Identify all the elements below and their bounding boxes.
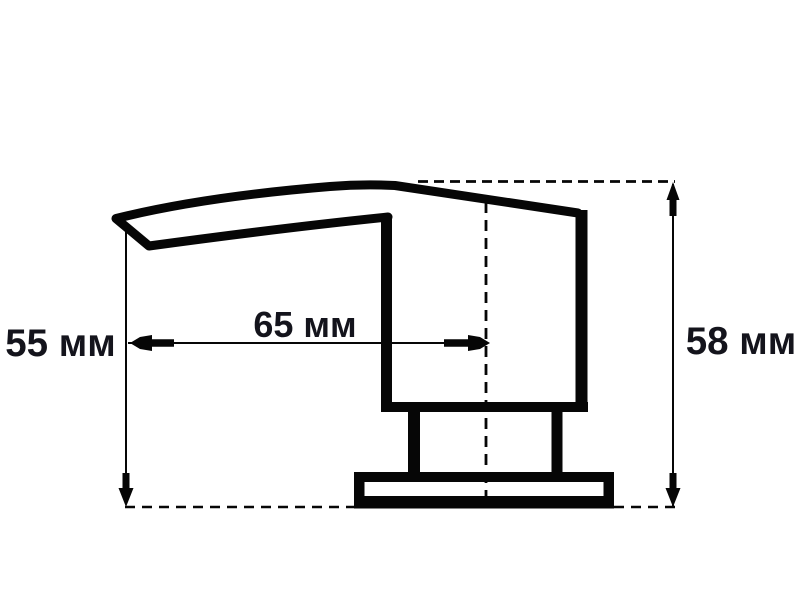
svg-text:58 мм: 58 мм: [686, 320, 796, 363]
svg-text:65 мм: 65 мм: [253, 304, 356, 345]
svg-text:55 мм: 55 мм: [5, 322, 115, 365]
